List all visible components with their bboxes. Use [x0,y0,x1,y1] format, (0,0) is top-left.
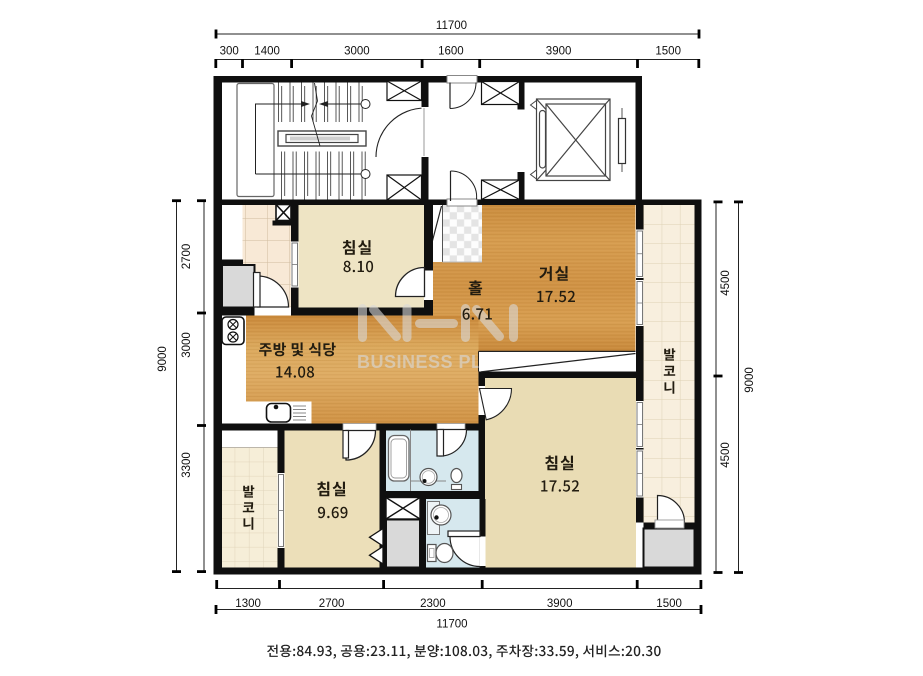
svg-text:300: 300 [220,46,239,58]
svg-text:3000: 3000 [181,332,193,358]
svg-text:4500: 4500 [720,270,732,296]
svg-text:3900: 3900 [547,598,573,610]
svg-text:3900: 3900 [546,46,572,58]
svg-text:2300: 2300 [420,598,446,610]
svg-text:2700: 2700 [319,598,345,610]
svg-text:1600: 1600 [438,46,464,58]
svg-text:1300: 1300 [235,598,261,610]
svg-text:4500: 4500 [720,442,732,468]
svg-text:1500: 1500 [655,46,681,58]
svg-text:2700: 2700 [181,244,193,270]
svg-text:3300: 3300 [181,452,193,478]
svg-text:1500: 1500 [656,598,682,610]
svg-text:9000: 9000 [157,346,169,372]
svg-text:9000: 9000 [744,367,756,393]
svg-text:11700: 11700 [436,20,467,32]
svg-text:11700: 11700 [436,619,467,631]
svg-text:3000: 3000 [344,46,370,58]
svg-text:1400: 1400 [254,46,280,58]
